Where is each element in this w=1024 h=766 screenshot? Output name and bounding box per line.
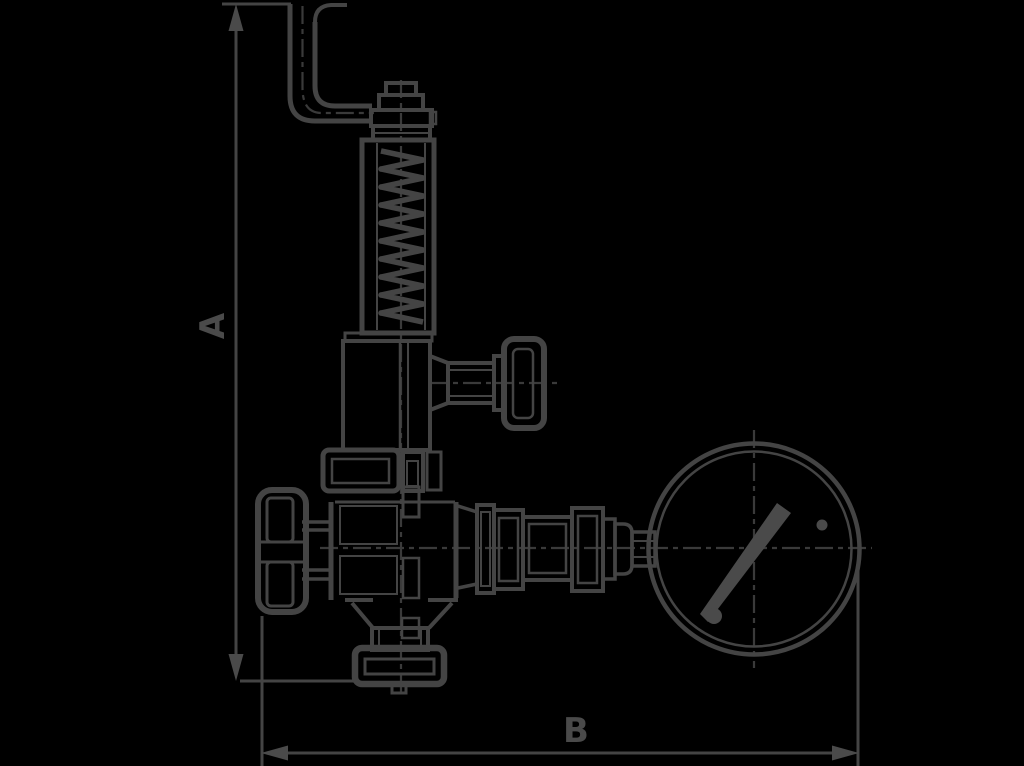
drawing-canvas: A B <box>0 0 1024 766</box>
pipe-top-flare <box>315 5 347 22</box>
inlet-flange-panel <box>365 659 434 674</box>
dim-b-arrow-right <box>832 746 859 761</box>
gauge-needle <box>700 503 791 622</box>
union-nut-a-panel <box>499 518 518 581</box>
dim-a-arrow-up <box>229 4 244 31</box>
handwheel-hub-band <box>258 542 306 562</box>
handwheel <box>258 490 331 612</box>
inlet-flange-tab <box>392 684 406 693</box>
union-nut-b-panel <box>578 516 597 583</box>
stem-guide-lower <box>403 558 419 598</box>
spring-housing <box>362 140 434 333</box>
flange-plate-panel <box>332 459 389 483</box>
dim-b-arrow-left <box>261 746 288 761</box>
flange-plate <box>323 450 399 491</box>
bonnet <box>343 333 432 450</box>
handwheel-panel-bottom <box>267 562 293 606</box>
flange-block-right <box>427 452 441 490</box>
body-panel-upper <box>340 506 397 544</box>
adjusting-cap <box>371 83 436 140</box>
valve-body <box>331 487 458 650</box>
bonnet-outline <box>343 341 430 450</box>
flange-block-panel <box>407 461 418 486</box>
dim-a-label: A <box>193 312 233 339</box>
valve-dimension-drawing: A B <box>0 0 1024 766</box>
spring-coil <box>381 151 423 322</box>
pipe-inner-wall <box>315 22 372 106</box>
body-panel-lower <box>340 556 397 594</box>
body-flange <box>323 450 441 491</box>
inlet-flange-outline <box>355 648 444 684</box>
needle-counterweight <box>706 608 722 624</box>
inlet-flange <box>355 648 444 693</box>
dim-b-label: B <box>563 711 589 751</box>
dimension-B: B <box>261 568 859 766</box>
dim-a-arrow-down <box>229 654 244 681</box>
dial-marker-dot <box>817 520 828 531</box>
handwheel-panel-top <box>267 498 293 542</box>
handwheel-outline <box>258 490 306 612</box>
union-nut-b <box>572 508 603 591</box>
